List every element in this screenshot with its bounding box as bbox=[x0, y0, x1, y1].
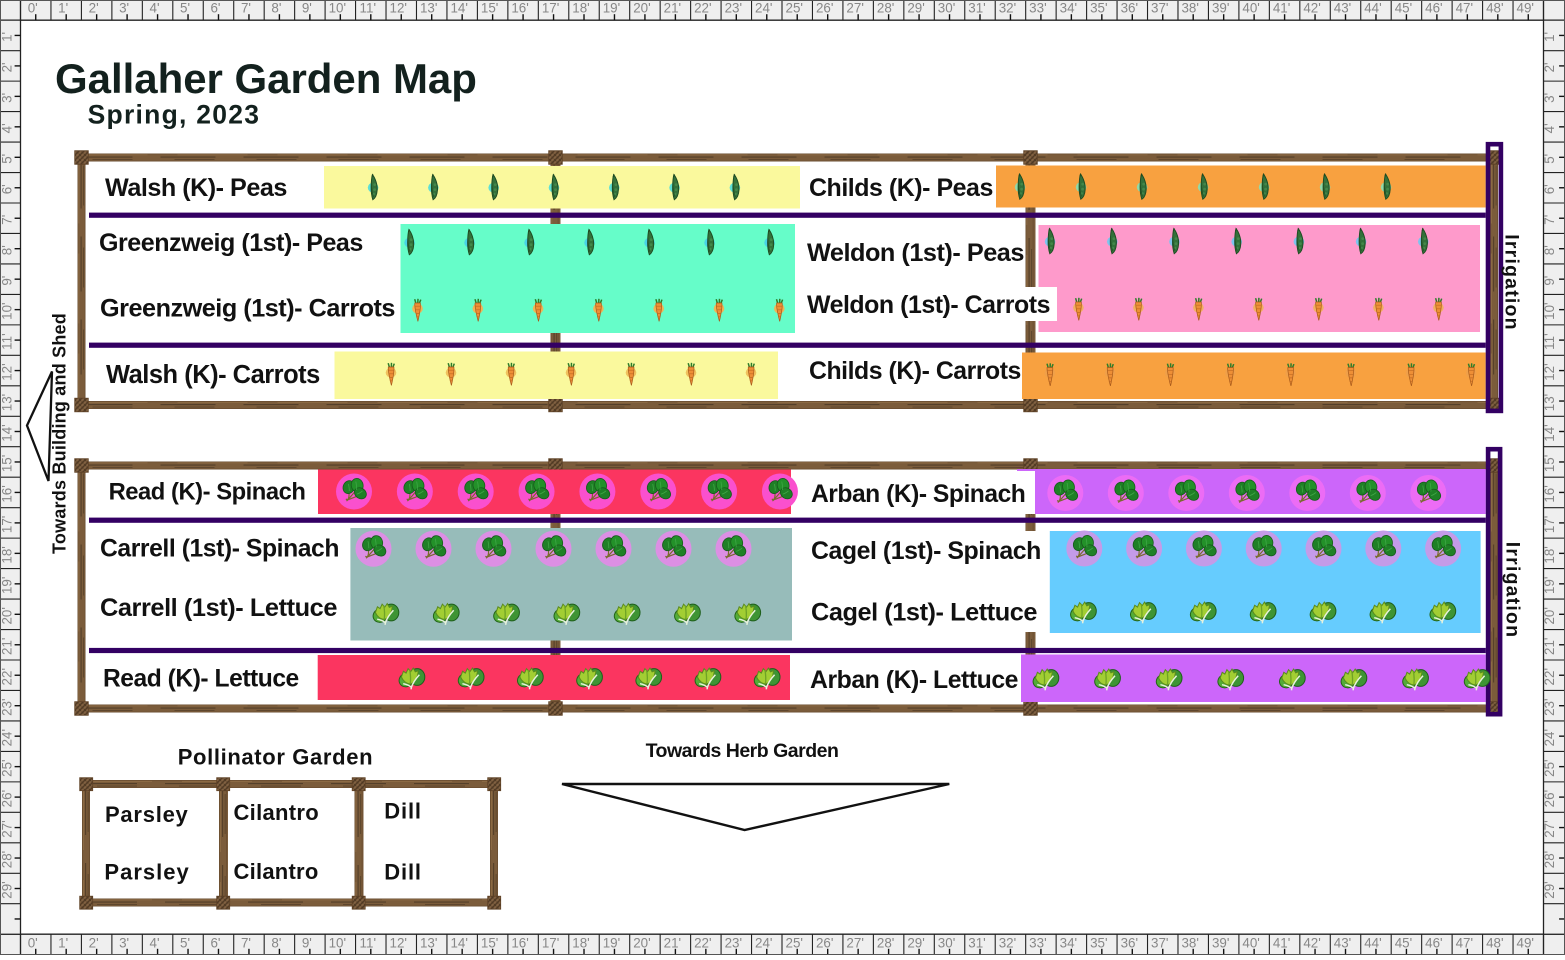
svg-text:15': 15' bbox=[481, 1, 498, 16]
svg-text:37': 37' bbox=[1151, 935, 1168, 950]
svg-text:Cilantro: Cilantro bbox=[234, 800, 319, 825]
svg-text:9': 9' bbox=[0, 276, 15, 286]
svg-text:5': 5' bbox=[180, 935, 190, 950]
svg-text:Carrell (1st)- Lettuce: Carrell (1st)- Lettuce bbox=[100, 594, 337, 622]
svg-text:43': 43' bbox=[1334, 1, 1351, 16]
svg-text:47': 47' bbox=[1456, 1, 1473, 16]
svg-text:24': 24' bbox=[1542, 729, 1557, 746]
svg-text:45': 45' bbox=[1395, 1, 1412, 16]
svg-text:9': 9' bbox=[1542, 276, 1557, 286]
svg-text:26': 26' bbox=[1542, 790, 1557, 807]
svg-text:8': 8' bbox=[271, 935, 281, 950]
svg-text:28': 28' bbox=[877, 1, 894, 16]
svg-text:40': 40' bbox=[1242, 935, 1259, 950]
svg-text:Greenzweig (1st)- Carrots: Greenzweig (1st)- Carrots bbox=[100, 294, 395, 322]
svg-text:10': 10' bbox=[0, 302, 15, 319]
svg-text:Towards Building and Shed: Towards Building and Shed bbox=[50, 313, 70, 554]
svg-text:4': 4' bbox=[150, 935, 160, 950]
svg-text:27': 27' bbox=[846, 935, 863, 950]
svg-text:45': 45' bbox=[1395, 935, 1412, 950]
svg-text:2': 2' bbox=[89, 935, 99, 950]
svg-text:42': 42' bbox=[1303, 935, 1320, 950]
svg-text:25': 25' bbox=[1542, 759, 1557, 776]
svg-text:10': 10' bbox=[1542, 302, 1557, 319]
svg-text:12': 12' bbox=[0, 363, 15, 380]
svg-text:7': 7' bbox=[0, 215, 15, 225]
svg-text:Gallaher Garden Map: Gallaher Garden Map bbox=[55, 55, 477, 102]
svg-text:Cagel (1st)- Lettuce: Cagel (1st)- Lettuce bbox=[811, 598, 1037, 626]
svg-text:33': 33' bbox=[1029, 1, 1046, 16]
svg-text:41': 41' bbox=[1273, 935, 1290, 950]
svg-text:18': 18' bbox=[572, 1, 589, 16]
svg-text:5': 5' bbox=[180, 1, 190, 16]
svg-text:19': 19' bbox=[603, 935, 620, 950]
svg-text:0': 0' bbox=[28, 1, 38, 16]
svg-text:Towards Herb Garden: Towards Herb Garden bbox=[646, 740, 839, 762]
svg-text:36': 36' bbox=[1121, 935, 1138, 950]
svg-text:Carrell (1st)- Spinach: Carrell (1st)- Spinach bbox=[100, 535, 339, 562]
svg-text:27': 27' bbox=[846, 1, 863, 16]
svg-text:26': 26' bbox=[816, 935, 833, 950]
svg-text:31': 31' bbox=[968, 1, 985, 16]
svg-text:22': 22' bbox=[0, 668, 15, 685]
svg-text:27': 27' bbox=[1542, 820, 1557, 837]
svg-text:8': 8' bbox=[0, 245, 15, 255]
svg-text:39': 39' bbox=[1212, 935, 1229, 950]
svg-text:10': 10' bbox=[329, 935, 346, 950]
svg-text:44': 44' bbox=[1364, 935, 1381, 950]
svg-text:0': 0' bbox=[28, 935, 38, 950]
svg-text:24': 24' bbox=[755, 1, 772, 16]
svg-text:Dill: Dill bbox=[384, 859, 422, 884]
svg-text:8': 8' bbox=[1542, 245, 1557, 255]
svg-text:12': 12' bbox=[1542, 363, 1557, 380]
svg-text:9': 9' bbox=[302, 1, 312, 16]
svg-text:12': 12' bbox=[390, 1, 407, 16]
svg-text:22': 22' bbox=[694, 935, 711, 950]
svg-text:2': 2' bbox=[1542, 62, 1557, 72]
svg-text:19': 19' bbox=[603, 1, 620, 16]
svg-text:40': 40' bbox=[1242, 1, 1259, 16]
svg-text:49': 49' bbox=[1517, 935, 1534, 950]
svg-text:48': 48' bbox=[1486, 1, 1503, 16]
svg-text:4': 4' bbox=[0, 123, 15, 133]
svg-text:7': 7' bbox=[241, 935, 251, 950]
svg-text:Spring, 2023: Spring, 2023 bbox=[88, 100, 261, 130]
svg-text:15': 15' bbox=[1542, 455, 1557, 472]
svg-text:35': 35' bbox=[1090, 1, 1107, 16]
svg-text:1': 1' bbox=[58, 1, 68, 16]
svg-text:49': 49' bbox=[1517, 1, 1534, 16]
svg-text:21': 21' bbox=[664, 935, 681, 950]
svg-text:10': 10' bbox=[329, 1, 346, 16]
svg-text:Read (K)- Spinach: Read (K)- Spinach bbox=[109, 479, 306, 506]
svg-text:1': 1' bbox=[1542, 32, 1557, 42]
svg-text:13': 13' bbox=[420, 935, 437, 950]
svg-text:23': 23' bbox=[1542, 698, 1557, 715]
svg-text:25': 25' bbox=[0, 759, 15, 776]
svg-text:15': 15' bbox=[0, 455, 15, 472]
svg-text:21': 21' bbox=[664, 1, 681, 16]
svg-text:22': 22' bbox=[694, 1, 711, 16]
svg-text:25': 25' bbox=[786, 1, 803, 16]
svg-text:30': 30' bbox=[938, 1, 955, 16]
svg-text:29': 29' bbox=[1542, 881, 1557, 898]
svg-text:Weldon (1st)- Carrots: Weldon (1st)- Carrots bbox=[807, 291, 1050, 319]
svg-text:Cagel (1st)- Spinach: Cagel (1st)- Spinach bbox=[811, 537, 1041, 565]
svg-text:38': 38' bbox=[1181, 1, 1198, 16]
svg-text:19': 19' bbox=[1542, 577, 1557, 594]
svg-text:Arban (K)- Lettuce: Arban (K)- Lettuce bbox=[810, 667, 1018, 694]
svg-text:26': 26' bbox=[0, 790, 15, 807]
svg-text:26': 26' bbox=[816, 1, 833, 16]
svg-text:29': 29' bbox=[907, 1, 924, 16]
svg-text:6': 6' bbox=[0, 184, 15, 194]
svg-text:15': 15' bbox=[481, 935, 498, 950]
svg-text:6': 6' bbox=[1542, 184, 1557, 194]
svg-text:19': 19' bbox=[0, 577, 15, 594]
svg-text:32': 32' bbox=[999, 935, 1016, 950]
svg-text:28': 28' bbox=[0, 851, 15, 868]
svg-text:14': 14' bbox=[0, 424, 15, 441]
svg-text:17': 17' bbox=[542, 935, 559, 950]
svg-text:20': 20' bbox=[0, 607, 15, 624]
svg-text:23': 23' bbox=[0, 698, 15, 715]
svg-text:32': 32' bbox=[999, 1, 1016, 16]
svg-text:7': 7' bbox=[1542, 215, 1557, 225]
svg-text:34': 34' bbox=[1060, 1, 1077, 16]
svg-text:39': 39' bbox=[1212, 1, 1229, 16]
svg-text:11': 11' bbox=[360, 1, 376, 16]
svg-text:24': 24' bbox=[755, 935, 772, 950]
svg-text:11': 11' bbox=[1542, 333, 1557, 349]
svg-text:3': 3' bbox=[119, 1, 129, 16]
svg-text:38': 38' bbox=[1181, 935, 1198, 950]
svg-text:20': 20' bbox=[1542, 607, 1557, 624]
svg-text:12': 12' bbox=[390, 935, 407, 950]
svg-text:29': 29' bbox=[907, 935, 924, 950]
svg-text:3': 3' bbox=[119, 935, 129, 950]
svg-text:16': 16' bbox=[511, 935, 528, 950]
svg-text:13': 13' bbox=[420, 1, 437, 16]
svg-text:2': 2' bbox=[89, 1, 99, 16]
svg-text:Arban (K)- Spinach: Arban (K)- Spinach bbox=[811, 481, 1025, 508]
svg-text:36': 36' bbox=[1121, 1, 1138, 16]
svg-text:43': 43' bbox=[1334, 935, 1351, 950]
svg-text:13': 13' bbox=[0, 394, 15, 411]
svg-text:25': 25' bbox=[786, 935, 803, 950]
svg-text:22': 22' bbox=[1542, 668, 1557, 685]
svg-text:18': 18' bbox=[572, 935, 589, 950]
svg-text:Parsley: Parsley bbox=[104, 859, 189, 884]
svg-text:Parsley: Parsley bbox=[105, 802, 189, 827]
svg-text:18': 18' bbox=[0, 546, 15, 563]
svg-text:5': 5' bbox=[0, 154, 15, 164]
svg-text:33': 33' bbox=[1029, 935, 1046, 950]
svg-text:Walsh (K)- Carrots: Walsh (K)- Carrots bbox=[106, 361, 320, 389]
svg-text:Weldon (1st)- Peas: Weldon (1st)- Peas bbox=[807, 239, 1024, 267]
svg-text:35': 35' bbox=[1090, 935, 1107, 950]
svg-text:16': 16' bbox=[511, 1, 528, 16]
svg-text:1': 1' bbox=[58, 935, 68, 950]
svg-text:4': 4' bbox=[150, 1, 160, 16]
svg-text:Greenzweig (1st)- Peas: Greenzweig (1st)- Peas bbox=[99, 229, 363, 257]
svg-text:13': 13' bbox=[1542, 394, 1557, 411]
svg-text:46': 46' bbox=[1425, 1, 1442, 16]
svg-text:44': 44' bbox=[1364, 1, 1381, 16]
svg-text:31': 31' bbox=[968, 935, 985, 950]
svg-text:Read (K)- Lettuce: Read (K)- Lettuce bbox=[103, 665, 299, 692]
svg-text:6': 6' bbox=[210, 1, 220, 16]
svg-text:Pollinator Garden: Pollinator Garden bbox=[178, 745, 373, 770]
svg-text:3': 3' bbox=[1542, 93, 1557, 103]
svg-text:Irrigation: Irrigation bbox=[1501, 234, 1523, 331]
svg-text:Irrigation: Irrigation bbox=[1502, 542, 1524, 639]
svg-text:20': 20' bbox=[633, 1, 650, 16]
svg-text:5': 5' bbox=[1542, 154, 1557, 164]
svg-text:14': 14' bbox=[450, 935, 467, 950]
svg-text:28': 28' bbox=[877, 935, 894, 950]
svg-text:21': 21' bbox=[0, 638, 15, 655]
svg-text:6': 6' bbox=[210, 935, 220, 950]
svg-text:46': 46' bbox=[1425, 935, 1442, 950]
svg-text:14': 14' bbox=[1542, 424, 1557, 441]
svg-text:16': 16' bbox=[0, 485, 15, 502]
svg-text:11': 11' bbox=[0, 333, 15, 349]
svg-text:17': 17' bbox=[1542, 516, 1557, 533]
svg-text:11': 11' bbox=[360, 935, 376, 950]
svg-text:21': 21' bbox=[1542, 638, 1557, 655]
svg-text:Childs (K)- Peas: Childs (K)- Peas bbox=[809, 174, 993, 202]
svg-text:Walsh (K)- Peas: Walsh (K)- Peas bbox=[105, 174, 287, 202]
svg-text:3': 3' bbox=[0, 93, 15, 103]
svg-text:42': 42' bbox=[1303, 1, 1320, 16]
svg-text:30': 30' bbox=[938, 935, 955, 950]
svg-text:8': 8' bbox=[271, 1, 281, 16]
svg-text:4': 4' bbox=[1542, 123, 1557, 133]
svg-text:1': 1' bbox=[0, 32, 15, 42]
svg-text:Childs (K)- Carrots: Childs (K)- Carrots bbox=[809, 358, 1021, 385]
svg-text:9': 9' bbox=[302, 935, 312, 950]
svg-text:20': 20' bbox=[633, 935, 650, 950]
svg-text:17': 17' bbox=[542, 1, 559, 16]
svg-text:37': 37' bbox=[1151, 1, 1168, 16]
svg-text:34': 34' bbox=[1060, 935, 1077, 950]
svg-text:24': 24' bbox=[0, 729, 15, 746]
svg-text:28': 28' bbox=[1542, 851, 1557, 868]
svg-text:29': 29' bbox=[0, 881, 15, 898]
svg-text:Dill: Dill bbox=[384, 798, 422, 823]
svg-text:16': 16' bbox=[1542, 485, 1557, 502]
svg-text:18': 18' bbox=[1542, 546, 1557, 563]
svg-text:41': 41' bbox=[1273, 1, 1290, 16]
svg-text:48': 48' bbox=[1486, 935, 1503, 950]
svg-text:23': 23' bbox=[725, 935, 742, 950]
svg-text:23': 23' bbox=[725, 1, 742, 16]
svg-text:7': 7' bbox=[241, 1, 251, 16]
svg-text:27': 27' bbox=[0, 820, 15, 837]
svg-text:2': 2' bbox=[0, 62, 15, 72]
svg-text:47': 47' bbox=[1456, 935, 1473, 950]
svg-text:17': 17' bbox=[0, 516, 15, 533]
svg-text:Cilantro: Cilantro bbox=[234, 859, 319, 884]
svg-text:14': 14' bbox=[450, 1, 467, 16]
